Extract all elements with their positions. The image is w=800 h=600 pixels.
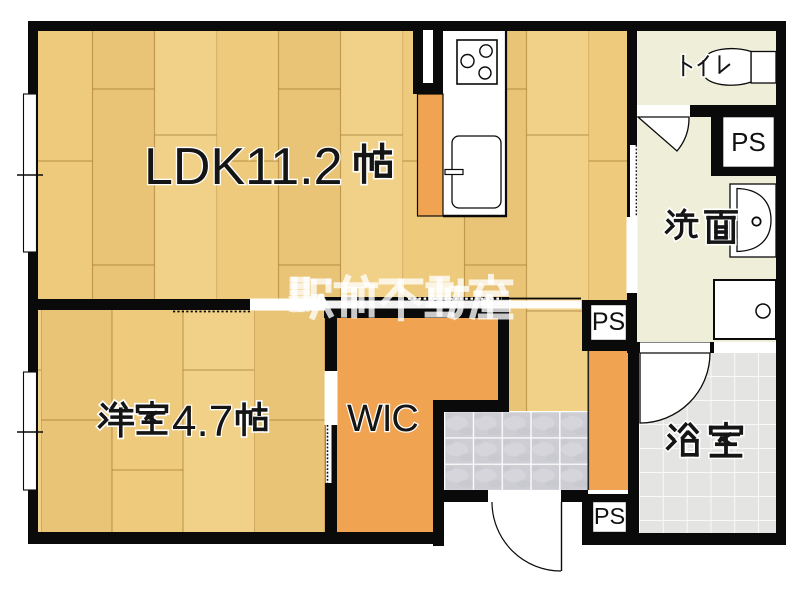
- svg-text:4.7: 4.7: [172, 397, 233, 446]
- svg-text:PS: PS: [731, 127, 766, 157]
- svg-text:PS: PS: [594, 503, 625, 529]
- svg-text:PS: PS: [592, 308, 625, 336]
- svg-text:WIC: WIC: [347, 398, 418, 440]
- svg-text:LDK11.2: LDK11.2: [144, 138, 343, 196]
